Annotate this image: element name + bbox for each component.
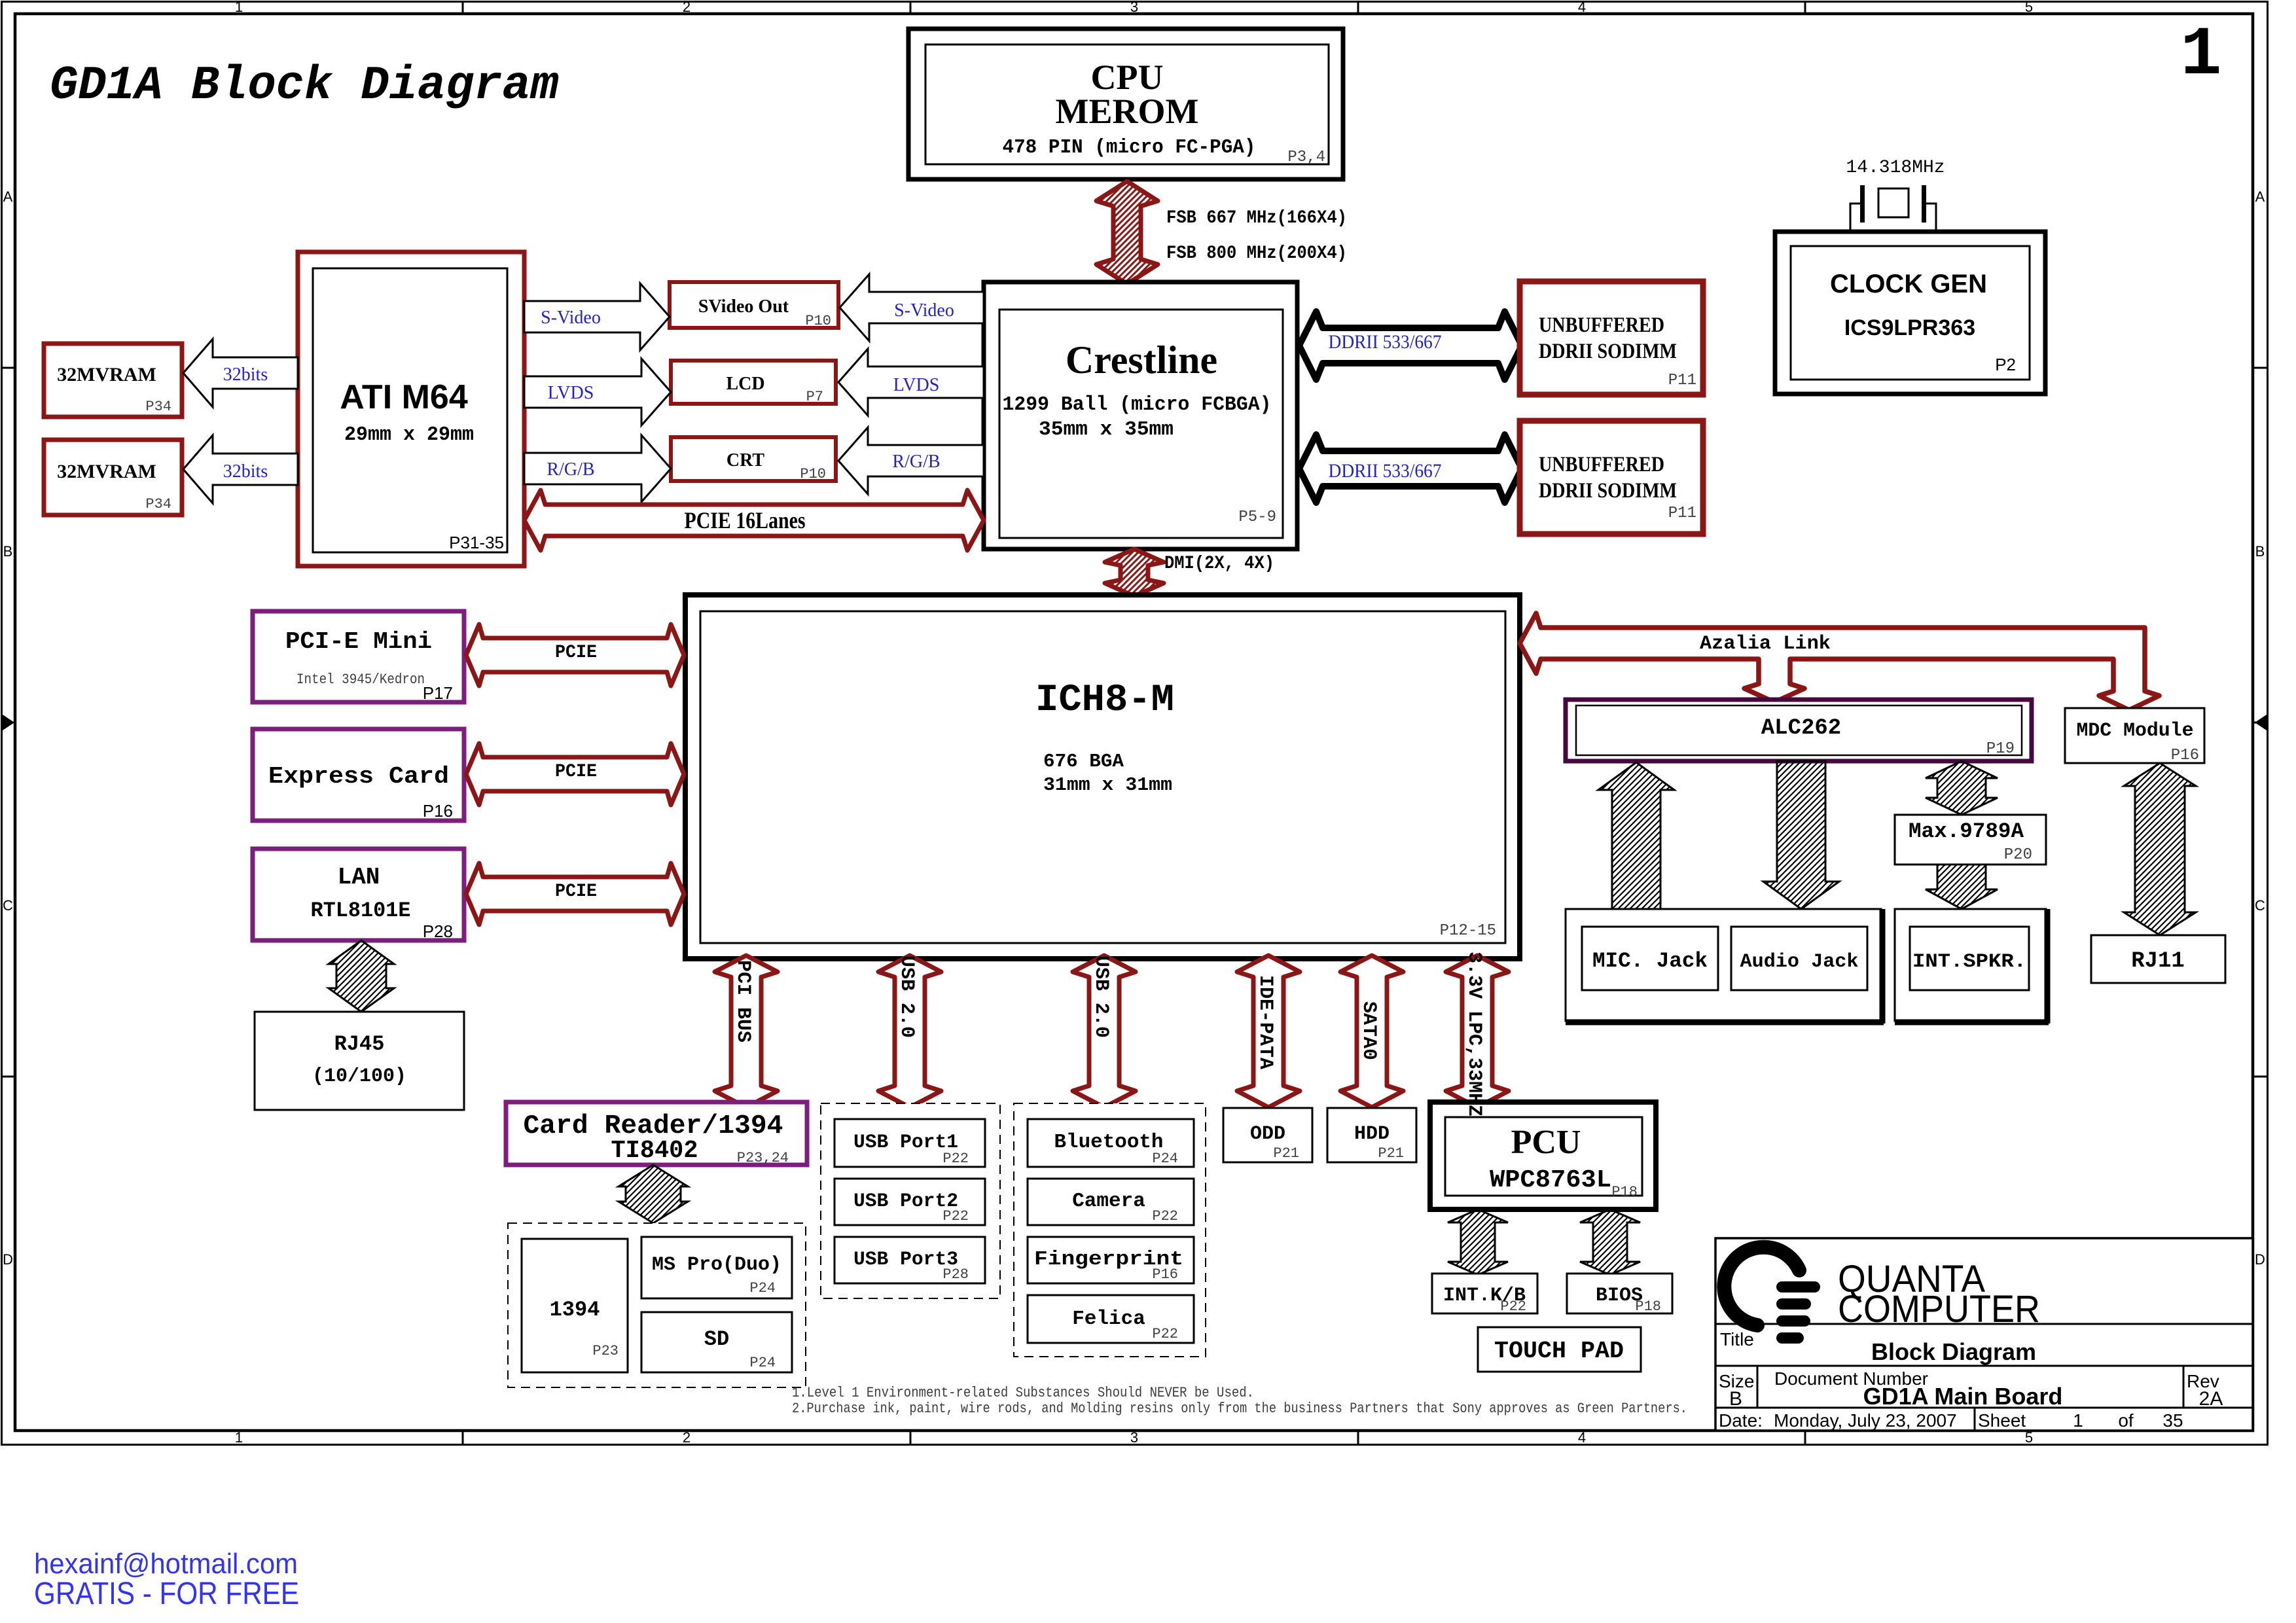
svg-text:USB 2.0: USB 2.0 [1090, 955, 1112, 1038]
svg-text:PCIE: PCIE [555, 762, 597, 782]
svg-text:4: 4 [1578, 0, 1586, 15]
svg-text:CPU: CPU [1091, 58, 1164, 97]
svg-text:PCU: PCU [1511, 1124, 1581, 1161]
svg-text:FSB 800 MHz(200X4): FSB 800 MHz(200X4) [1166, 243, 1347, 264]
svg-text:478 PIN (micro FC-PGA): 478 PIN (micro FC-PGA) [1003, 136, 1256, 159]
svg-text:P22: P22 [1152, 1208, 1178, 1224]
svg-text:ODD: ODD [1250, 1123, 1285, 1145]
svg-text:35: 35 [2162, 1410, 2183, 1431]
svg-text:35mm x 35mm: 35mm x 35mm [1039, 418, 1174, 441]
svg-text:Crestline: Crestline [1066, 338, 1217, 382]
svg-text:GRATIS - FOR FREE: GRATIS - FOR FREE [34, 1577, 299, 1611]
svg-text:1.Level 1 Environment-related: 1.Level 1 Environment-related Substances… [792, 1385, 1254, 1401]
svg-text:UNBUFFERED: UNBUFFERED [1539, 313, 1664, 337]
svg-text:32bits: 32bits [223, 365, 268, 385]
svg-text:MEROM: MEROM [1056, 92, 1199, 131]
svg-text:1: 1 [235, 1429, 243, 1446]
svg-text:PCI BUS: PCI BUS [732, 960, 754, 1043]
svg-text:P24: P24 [749, 1280, 776, 1296]
svg-text:PCIE 16Lanes: PCIE 16Lanes [685, 507, 806, 533]
svg-text:SD: SD [704, 1327, 729, 1351]
svg-text:P22: P22 [1500, 1298, 1526, 1315]
svg-text:RTL8101E: RTL8101E [311, 899, 411, 923]
svg-text:(10/100): (10/100) [312, 1065, 406, 1088]
svg-text:A: A [2255, 188, 2265, 205]
svg-text:R/G/B: R/G/B [547, 459, 594, 480]
svg-text:Audio Jack: Audio Jack [1740, 951, 1859, 973]
svg-text:CRT: CRT [726, 450, 764, 471]
svg-text:P16: P16 [2171, 747, 2199, 764]
svg-text:DDRII SODIMM: DDRII SODIMM [1539, 340, 1677, 363]
svg-text:B: B [3, 543, 13, 560]
svg-text:PCI-E Mini: PCI-E Mini [285, 628, 432, 655]
svg-text:P31-35: P31-35 [449, 533, 504, 552]
svg-text:MDC Module: MDC Module [2077, 720, 2194, 742]
svg-text:1: 1 [2180, 16, 2221, 94]
svg-text:P18: P18 [1611, 1184, 1638, 1200]
svg-text:Monday, July 23, 2007: Monday, July 23, 2007 [1774, 1410, 1957, 1431]
svg-text:32MVRAM: 32MVRAM [57, 364, 156, 385]
svg-text:WPC8763L: WPC8763L [1490, 1166, 1611, 1194]
svg-text:P22: P22 [942, 1150, 969, 1167]
svg-text:MS Pro(Duo): MS Pro(Duo) [652, 1254, 781, 1276]
svg-text:Azalia Link: Azalia Link [1700, 633, 1831, 655]
svg-text:3: 3 [1130, 0, 1138, 15]
svg-text:P20: P20 [2004, 846, 2032, 864]
svg-text:TOUCH PAD: TOUCH PAD [1494, 1338, 1624, 1364]
svg-text:ICS9LPR363: ICS9LPR363 [1844, 315, 1975, 340]
svg-text:P23: P23 [592, 1343, 619, 1359]
svg-text:Felica: Felica [1072, 1308, 1145, 1330]
svg-text:P10: P10 [805, 313, 831, 329]
svg-text:P22: P22 [942, 1208, 969, 1224]
svg-text:LAN: LAN [338, 864, 380, 891]
svg-text:P17: P17 [423, 683, 453, 703]
svg-text:LVDS: LVDS [893, 375, 940, 395]
svg-text:Express Card: Express Card [268, 763, 449, 790]
svg-text:P21: P21 [1378, 1145, 1404, 1162]
svg-text:1: 1 [235, 0, 243, 15]
svg-text:D: D [2255, 1251, 2265, 1268]
svg-text:32MVRAM: 32MVRAM [57, 461, 156, 482]
svg-text:P34: P34 [145, 399, 171, 415]
svg-text:P24: P24 [1152, 1150, 1178, 1167]
svg-text:P22: P22 [1152, 1326, 1178, 1342]
svg-text:P16: P16 [1152, 1266, 1178, 1283]
svg-text:P11: P11 [1668, 372, 1696, 389]
svg-text:P16: P16 [423, 801, 453, 821]
svg-text:DMI(2X, 4X): DMI(2X, 4X) [1164, 554, 1274, 574]
svg-text:14.318MHz: 14.318MHz [1846, 158, 1945, 178]
svg-text:SATA0: SATA0 [1357, 1001, 1380, 1060]
svg-text:DDRII 533/667: DDRII 533/667 [1329, 331, 1442, 353]
svg-text:FSB 667 MHz(166X4): FSB 667 MHz(166X4) [1166, 208, 1347, 228]
svg-text:P34: P34 [145, 496, 171, 512]
svg-text:P2: P2 [1995, 355, 2016, 374]
svg-text:hexainf@hotmail.com: hexainf@hotmail.com [34, 1548, 298, 1580]
svg-text:3.3V LPC,33MHZ: 3.3V LPC,33MHZ [1463, 952, 1485, 1116]
svg-text:P28: P28 [942, 1266, 969, 1283]
svg-text:Title: Title [1720, 1329, 1754, 1349]
svg-text:P5-9: P5-9 [1238, 508, 1276, 526]
svg-text:A: A [3, 188, 13, 205]
svg-text:IDE-PATA: IDE-PATA [1254, 975, 1276, 1069]
svg-text:1394: 1394 [550, 1298, 600, 1322]
svg-text:of: of [2118, 1410, 2134, 1431]
svg-text:RJ45: RJ45 [334, 1032, 385, 1056]
svg-text:GD1A Main Board: GD1A Main Board [1863, 1383, 2063, 1410]
svg-text:5: 5 [2025, 0, 2033, 15]
svg-text:676 BGA: 676 BGA [1043, 751, 1124, 772]
svg-text:LCD: LCD [726, 374, 764, 394]
svg-text:P11: P11 [1668, 505, 1696, 522]
svg-text:1: 1 [2073, 1410, 2083, 1431]
svg-text:HDD: HDD [1354, 1123, 1390, 1145]
svg-text:S-Video: S-Video [894, 300, 954, 321]
svg-text:2A: 2A [2199, 1388, 2223, 1410]
svg-text:CLOCK GEN: CLOCK GEN [1830, 270, 1987, 298]
svg-text:31mm x 31mm: 31mm x 31mm [1043, 774, 1172, 796]
svg-text:P21: P21 [1273, 1145, 1299, 1162]
svg-text:Intel 3945/Kedron: Intel 3945/Kedron [296, 671, 425, 688]
svg-text:R/G/B: R/G/B [892, 452, 940, 472]
svg-text:ICH8-M: ICH8-M [1035, 679, 1174, 722]
svg-text:RJ11: RJ11 [2131, 949, 2185, 974]
svg-text:Bluetooth: Bluetooth [1054, 1131, 1164, 1154]
svg-text:C: C [3, 897, 13, 914]
svg-text:UNBUFFERED: UNBUFFERED [1539, 453, 1664, 476]
svg-text:29mm x 29mm: 29mm x 29mm [344, 423, 474, 446]
svg-text:C: C [2255, 897, 2265, 914]
svg-text:D: D [3, 1251, 13, 1268]
svg-text:PCIE: PCIE [555, 882, 597, 902]
svg-text:Block Diagram: Block Diagram [1871, 1338, 2036, 1365]
svg-text:P28: P28 [423, 921, 453, 941]
svg-text:2.Purchase ink, paint, wire ro: 2.Purchase ink, paint, wire rods, and Mo… [792, 1400, 1687, 1417]
svg-text:P23,24: P23,24 [737, 1150, 789, 1166]
svg-text:PCIE: PCIE [555, 643, 597, 663]
svg-text:LVDS: LVDS [548, 383, 594, 403]
svg-text:2: 2 [683, 1429, 691, 1446]
svg-text:B: B [1729, 1388, 1742, 1410]
svg-text:SVideo Out: SVideo Out [698, 296, 789, 317]
svg-text:INT.SPKR.: INT.SPKR. [1912, 951, 2026, 973]
svg-text:32bits: 32bits [223, 461, 268, 482]
svg-text:P19: P19 [1986, 740, 2015, 758]
svg-text:Camera: Camera [1072, 1190, 1145, 1213]
svg-text:P7: P7 [806, 389, 823, 405]
svg-text:3: 3 [1130, 1429, 1138, 1446]
svg-text:Sheet: Sheet [1978, 1410, 2026, 1431]
svg-text:ATI M64: ATI M64 [340, 378, 468, 416]
svg-text:DDRII 533/667: DDRII 533/667 [1329, 460, 1442, 482]
svg-text:P10: P10 [800, 466, 826, 482]
svg-text:DDRII SODIMM: DDRII SODIMM [1539, 479, 1677, 503]
svg-text:4: 4 [1578, 1429, 1586, 1446]
svg-text:MIC. Jack: MIC. Jack [1592, 949, 1708, 973]
svg-text:ALC262: ALC262 [1761, 716, 1841, 741]
svg-text:GD1A Block Diagram: GD1A Block Diagram [50, 59, 559, 113]
svg-text:Date:: Date: [1719, 1410, 1763, 1431]
svg-text:USB 2.0: USB 2.0 [895, 955, 918, 1038]
svg-text:P24: P24 [749, 1355, 776, 1371]
svg-text:TI8402: TI8402 [611, 1137, 698, 1165]
svg-text:COMPUTER: COMPUTER [1838, 1288, 2040, 1330]
svg-text:Max.9789A: Max.9789A [1909, 819, 2024, 844]
svg-text:S-Video: S-Video [541, 308, 601, 328]
svg-text:B: B [2255, 543, 2265, 560]
svg-text:P12-15: P12-15 [1440, 922, 1496, 940]
svg-text:2: 2 [683, 0, 691, 15]
svg-text:1299 Ball (micro FCBGA): 1299 Ball (micro FCBGA) [1003, 393, 1272, 416]
svg-text:P18: P18 [1635, 1298, 1661, 1315]
svg-text:P3,4: P3,4 [1287, 149, 1325, 166]
